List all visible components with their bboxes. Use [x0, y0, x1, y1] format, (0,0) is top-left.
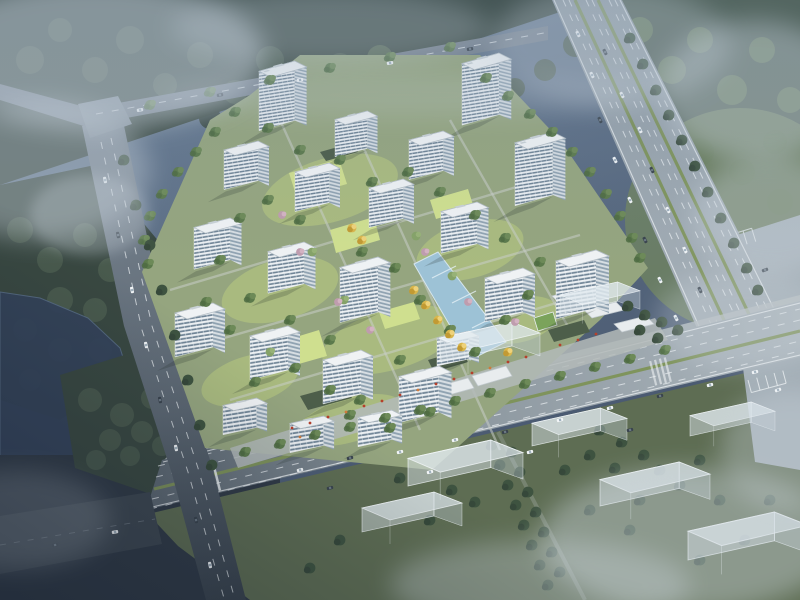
- screenshot-canvas: [0, 0, 800, 600]
- color-grade: [0, 0, 800, 600]
- aerial-rendering: [0, 0, 800, 600]
